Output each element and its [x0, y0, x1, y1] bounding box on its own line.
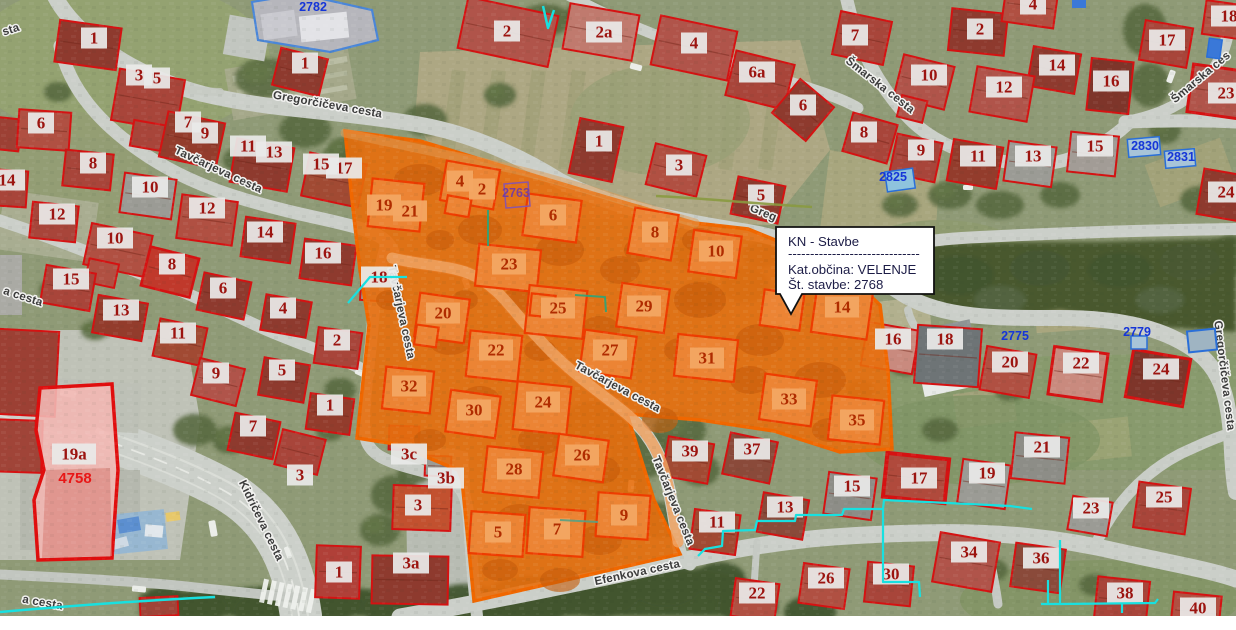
svg-text:2763: 2763	[502, 186, 530, 200]
svg-text:39: 39	[682, 442, 699, 461]
svg-text:7: 7	[553, 520, 562, 539]
svg-text:11: 11	[709, 513, 725, 532]
svg-text:7: 7	[249, 417, 258, 436]
svg-text:9: 9	[201, 124, 210, 143]
svg-text:3a: 3a	[403, 554, 421, 573]
svg-text:31: 31	[699, 349, 716, 368]
svg-text:22: 22	[1073, 354, 1090, 373]
svg-text:2825: 2825	[879, 170, 907, 184]
svg-text:6a: 6a	[749, 63, 767, 82]
svg-text:Št. stavbe: 2768: Št. stavbe: 2768	[788, 277, 883, 292]
svg-text:37: 37	[744, 440, 762, 459]
svg-text:6: 6	[549, 206, 558, 225]
svg-text:2: 2	[478, 180, 487, 199]
svg-text:3: 3	[414, 496, 423, 515]
svg-text:3: 3	[296, 466, 305, 485]
svg-text:6: 6	[799, 96, 808, 115]
svg-text:4: 4	[1029, 0, 1038, 14]
svg-text:14: 14	[834, 298, 852, 317]
svg-text:30: 30	[466, 401, 483, 420]
svg-text:19: 19	[979, 464, 996, 483]
svg-text:5: 5	[757, 186, 766, 205]
svg-text:3: 3	[675, 156, 684, 175]
svg-text:24: 24	[535, 393, 553, 412]
svg-text:24: 24	[1153, 360, 1171, 379]
svg-text:2830: 2830	[1131, 139, 1159, 153]
svg-text:11: 11	[170, 324, 186, 343]
svg-text:13: 13	[1025, 147, 1042, 166]
svg-text:15: 15	[313, 155, 330, 174]
svg-text:8: 8	[89, 154, 98, 173]
svg-text:2a: 2a	[596, 23, 614, 42]
svg-text:3c: 3c	[401, 445, 418, 464]
svg-text:4: 4	[279, 299, 288, 318]
svg-text:2: 2	[503, 22, 512, 41]
svg-text:14: 14	[1049, 56, 1067, 75]
svg-text:28: 28	[506, 460, 523, 479]
svg-text:1: 1	[595, 132, 604, 151]
svg-text:15: 15	[63, 270, 80, 289]
svg-text:25: 25	[1156, 488, 1173, 507]
svg-text:8: 8	[860, 123, 869, 142]
svg-text:32: 32	[401, 377, 418, 396]
svg-text:9: 9	[917, 141, 926, 160]
svg-text:10: 10	[921, 66, 938, 85]
svg-text:24: 24	[1218, 183, 1236, 202]
svg-text:38: 38	[1117, 584, 1134, 603]
svg-text:16: 16	[1103, 72, 1120, 91]
svg-text:23: 23	[501, 255, 518, 274]
svg-text:14: 14	[0, 171, 16, 190]
svg-text:33: 33	[781, 390, 798, 409]
svg-text:5: 5	[278, 361, 287, 380]
svg-text:12: 12	[199, 199, 216, 218]
svg-text:13: 13	[777, 498, 794, 517]
svg-text:6: 6	[219, 279, 228, 298]
svg-text:Kat.občina: VELENJE: Kat.občina: VELENJE	[788, 262, 916, 277]
svg-text:10: 10	[107, 229, 124, 248]
svg-text:18: 18	[1221, 7, 1236, 26]
svg-text:10: 10	[142, 178, 159, 197]
svg-text:3: 3	[135, 66, 144, 85]
svg-text:13: 13	[266, 143, 283, 162]
svg-text:13: 13	[113, 301, 130, 320]
svg-text:5: 5	[153, 69, 162, 88]
svg-text:22: 22	[749, 584, 766, 603]
svg-text:3b: 3b	[437, 469, 455, 488]
svg-text:30: 30	[883, 565, 900, 584]
svg-text:16: 16	[885, 330, 902, 349]
svg-text:22: 22	[488, 341, 505, 360]
svg-text:12: 12	[996, 78, 1013, 97]
svg-text:29: 29	[636, 297, 653, 316]
svg-text:17: 17	[911, 469, 929, 488]
svg-text:1: 1	[335, 563, 344, 582]
svg-text:21: 21	[402, 202, 419, 221]
svg-text:14: 14	[257, 223, 275, 242]
svg-text:20: 20	[1002, 353, 1019, 372]
svg-text:2779: 2779	[1123, 325, 1151, 339]
svg-text:10: 10	[708, 242, 725, 261]
svg-text:19: 19	[376, 196, 393, 215]
svg-text:23: 23	[1218, 84, 1235, 103]
svg-text:23: 23	[1083, 499, 1100, 518]
svg-text:2782: 2782	[299, 0, 327, 14]
svg-text:2: 2	[333, 331, 342, 350]
svg-text:34: 34	[961, 543, 979, 562]
svg-text:27: 27	[602, 341, 620, 360]
svg-text:15: 15	[1087, 137, 1104, 156]
svg-text:15: 15	[844, 477, 861, 496]
svg-text:8: 8	[168, 255, 177, 274]
svg-text:26: 26	[574, 446, 591, 465]
svg-text:35: 35	[849, 411, 866, 430]
svg-text:11: 11	[240, 137, 256, 156]
svg-text:8: 8	[651, 223, 660, 242]
svg-text:2831: 2831	[1167, 150, 1195, 164]
svg-text:4758: 4758	[58, 470, 91, 487]
svg-text:7: 7	[851, 26, 860, 45]
svg-text:25: 25	[550, 299, 567, 318]
svg-text:4: 4	[456, 172, 465, 191]
svg-text:4: 4	[690, 34, 699, 53]
svg-text:------------------------------: ------------------------------	[788, 246, 920, 261]
svg-text:20: 20	[435, 304, 452, 323]
svg-text:1: 1	[90, 29, 99, 48]
svg-text:40: 40	[1190, 599, 1207, 618]
svg-text:1: 1	[301, 54, 310, 73]
svg-text:11: 11	[970, 147, 986, 166]
svg-text:1: 1	[326, 396, 335, 415]
svg-text:18: 18	[937, 330, 954, 349]
svg-text:6: 6	[37, 114, 46, 133]
svg-text:26: 26	[818, 569, 835, 588]
svg-text:9: 9	[212, 364, 221, 383]
svg-text:2775: 2775	[1001, 329, 1029, 343]
svg-text:36: 36	[1033, 549, 1050, 568]
svg-text:7: 7	[184, 113, 193, 132]
svg-text:5: 5	[494, 523, 503, 542]
svg-text:19a: 19a	[61, 445, 87, 464]
svg-text:9: 9	[620, 506, 629, 525]
svg-text:2: 2	[976, 20, 985, 39]
svg-text:16: 16	[315, 244, 332, 263]
svg-text:21: 21	[1034, 438, 1051, 457]
svg-text:17: 17	[1159, 31, 1177, 50]
svg-text:12: 12	[49, 205, 66, 224]
